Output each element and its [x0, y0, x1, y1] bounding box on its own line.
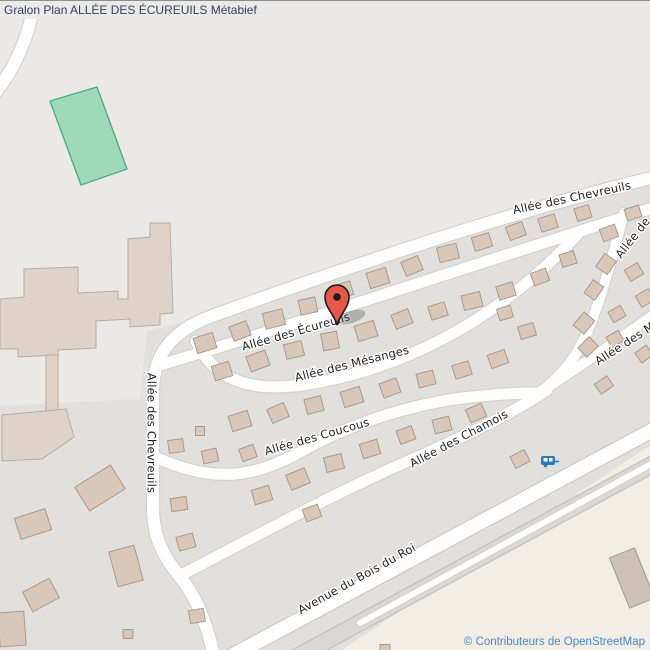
house-building: [196, 427, 205, 436]
house-building: [201, 448, 218, 464]
house-building: [321, 331, 340, 351]
caravan-window: [544, 458, 548, 462]
house-building: [168, 439, 185, 454]
house-building: [0, 611, 26, 647]
house-building: [123, 630, 133, 639]
map-page: Allée des ChevreuilsAllée des Chevreuils…: [0, 0, 650, 650]
house-building: [380, 645, 390, 650]
street-label-allee-des-chevreuils-vertical: Allée des Chevreuils: [145, 373, 159, 494]
marker-center-dot: [333, 293, 341, 301]
caravan-body: [541, 456, 555, 465]
house-building: [298, 297, 318, 315]
map-svg: Allée des ChevreuilsAllée des Chevreuils…: [0, 1, 650, 650]
page-title-bar: Gralon Plan ALLÉE DES ÉCUREUILS Métabief: [0, 2, 264, 19]
caravan-window: [549, 458, 553, 462]
osm-attribution-link[interactable]: © Contributeurs de OpenStreetMap: [464, 636, 645, 648]
caravan-wheel: [544, 464, 548, 468]
map-canvas[interactable]: Allée des ChevreuilsAllée des Chevreuils…: [0, 1, 650, 650]
building-annex: [46, 355, 58, 415]
house-building: [170, 496, 188, 511]
house-building: [188, 608, 205, 623]
page-title: Gralon Plan ALLÉE DES ÉCUREUILS Métabief: [4, 3, 257, 17]
